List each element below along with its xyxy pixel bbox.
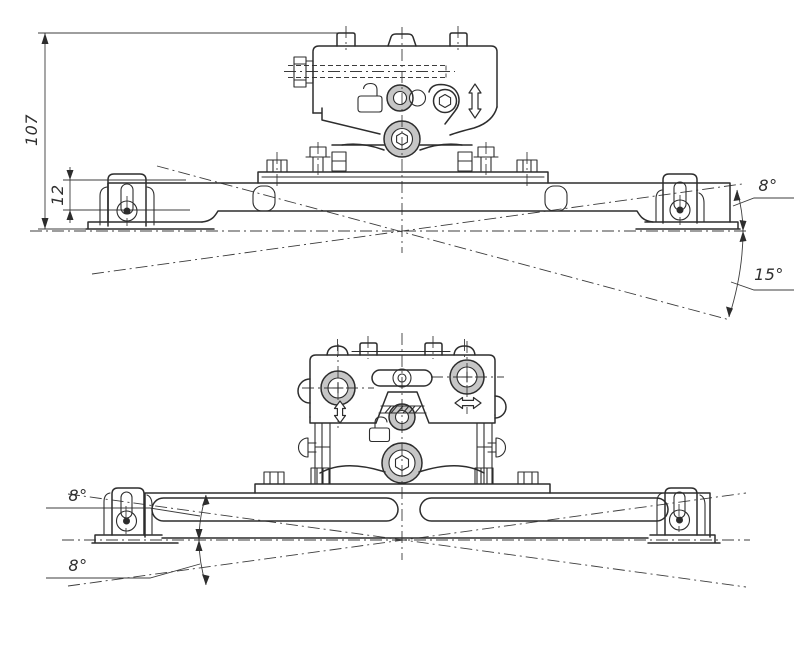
swivel-down-centerline bbox=[68, 494, 746, 587]
ceiling-mount-technical-drawing: 107 12 8° 15° 8° 8° bbox=[0, 0, 800, 650]
side-bolt bbox=[294, 57, 313, 87]
swivel-up-angle-label: 8° bbox=[58, 487, 98, 505]
plate-nut bbox=[518, 472, 538, 484]
tilt-up-angle-label: 8° bbox=[748, 177, 788, 195]
angle-dimension-arc bbox=[729, 190, 743, 317]
support-rail bbox=[92, 493, 720, 543]
rail-slot bbox=[420, 498, 668, 521]
drawing-canvas bbox=[0, 0, 800, 650]
plate-nut bbox=[264, 472, 284, 484]
tilt-15-centerline bbox=[157, 166, 730, 320]
left-right-arrow-icon bbox=[455, 398, 481, 409]
dim-107-lines bbox=[38, 33, 344, 229]
up-down-arrow-icon bbox=[469, 84, 481, 118]
rail-slot bbox=[152, 498, 398, 521]
tilt-down-angle-label: 15° bbox=[746, 266, 792, 284]
dim-offset-label: 12 bbox=[49, 173, 67, 217]
unlock-icon bbox=[370, 417, 390, 442]
swivel-down-angle-label: 8° bbox=[58, 557, 98, 575]
filled-shapes bbox=[117, 85, 691, 531]
unlock-icon bbox=[358, 84, 382, 113]
mounting-plate bbox=[258, 160, 548, 183]
dim-height-label: 107 bbox=[23, 108, 41, 152]
upper-view-dimensions bbox=[30, 26, 794, 320]
support-rail bbox=[86, 183, 740, 229]
